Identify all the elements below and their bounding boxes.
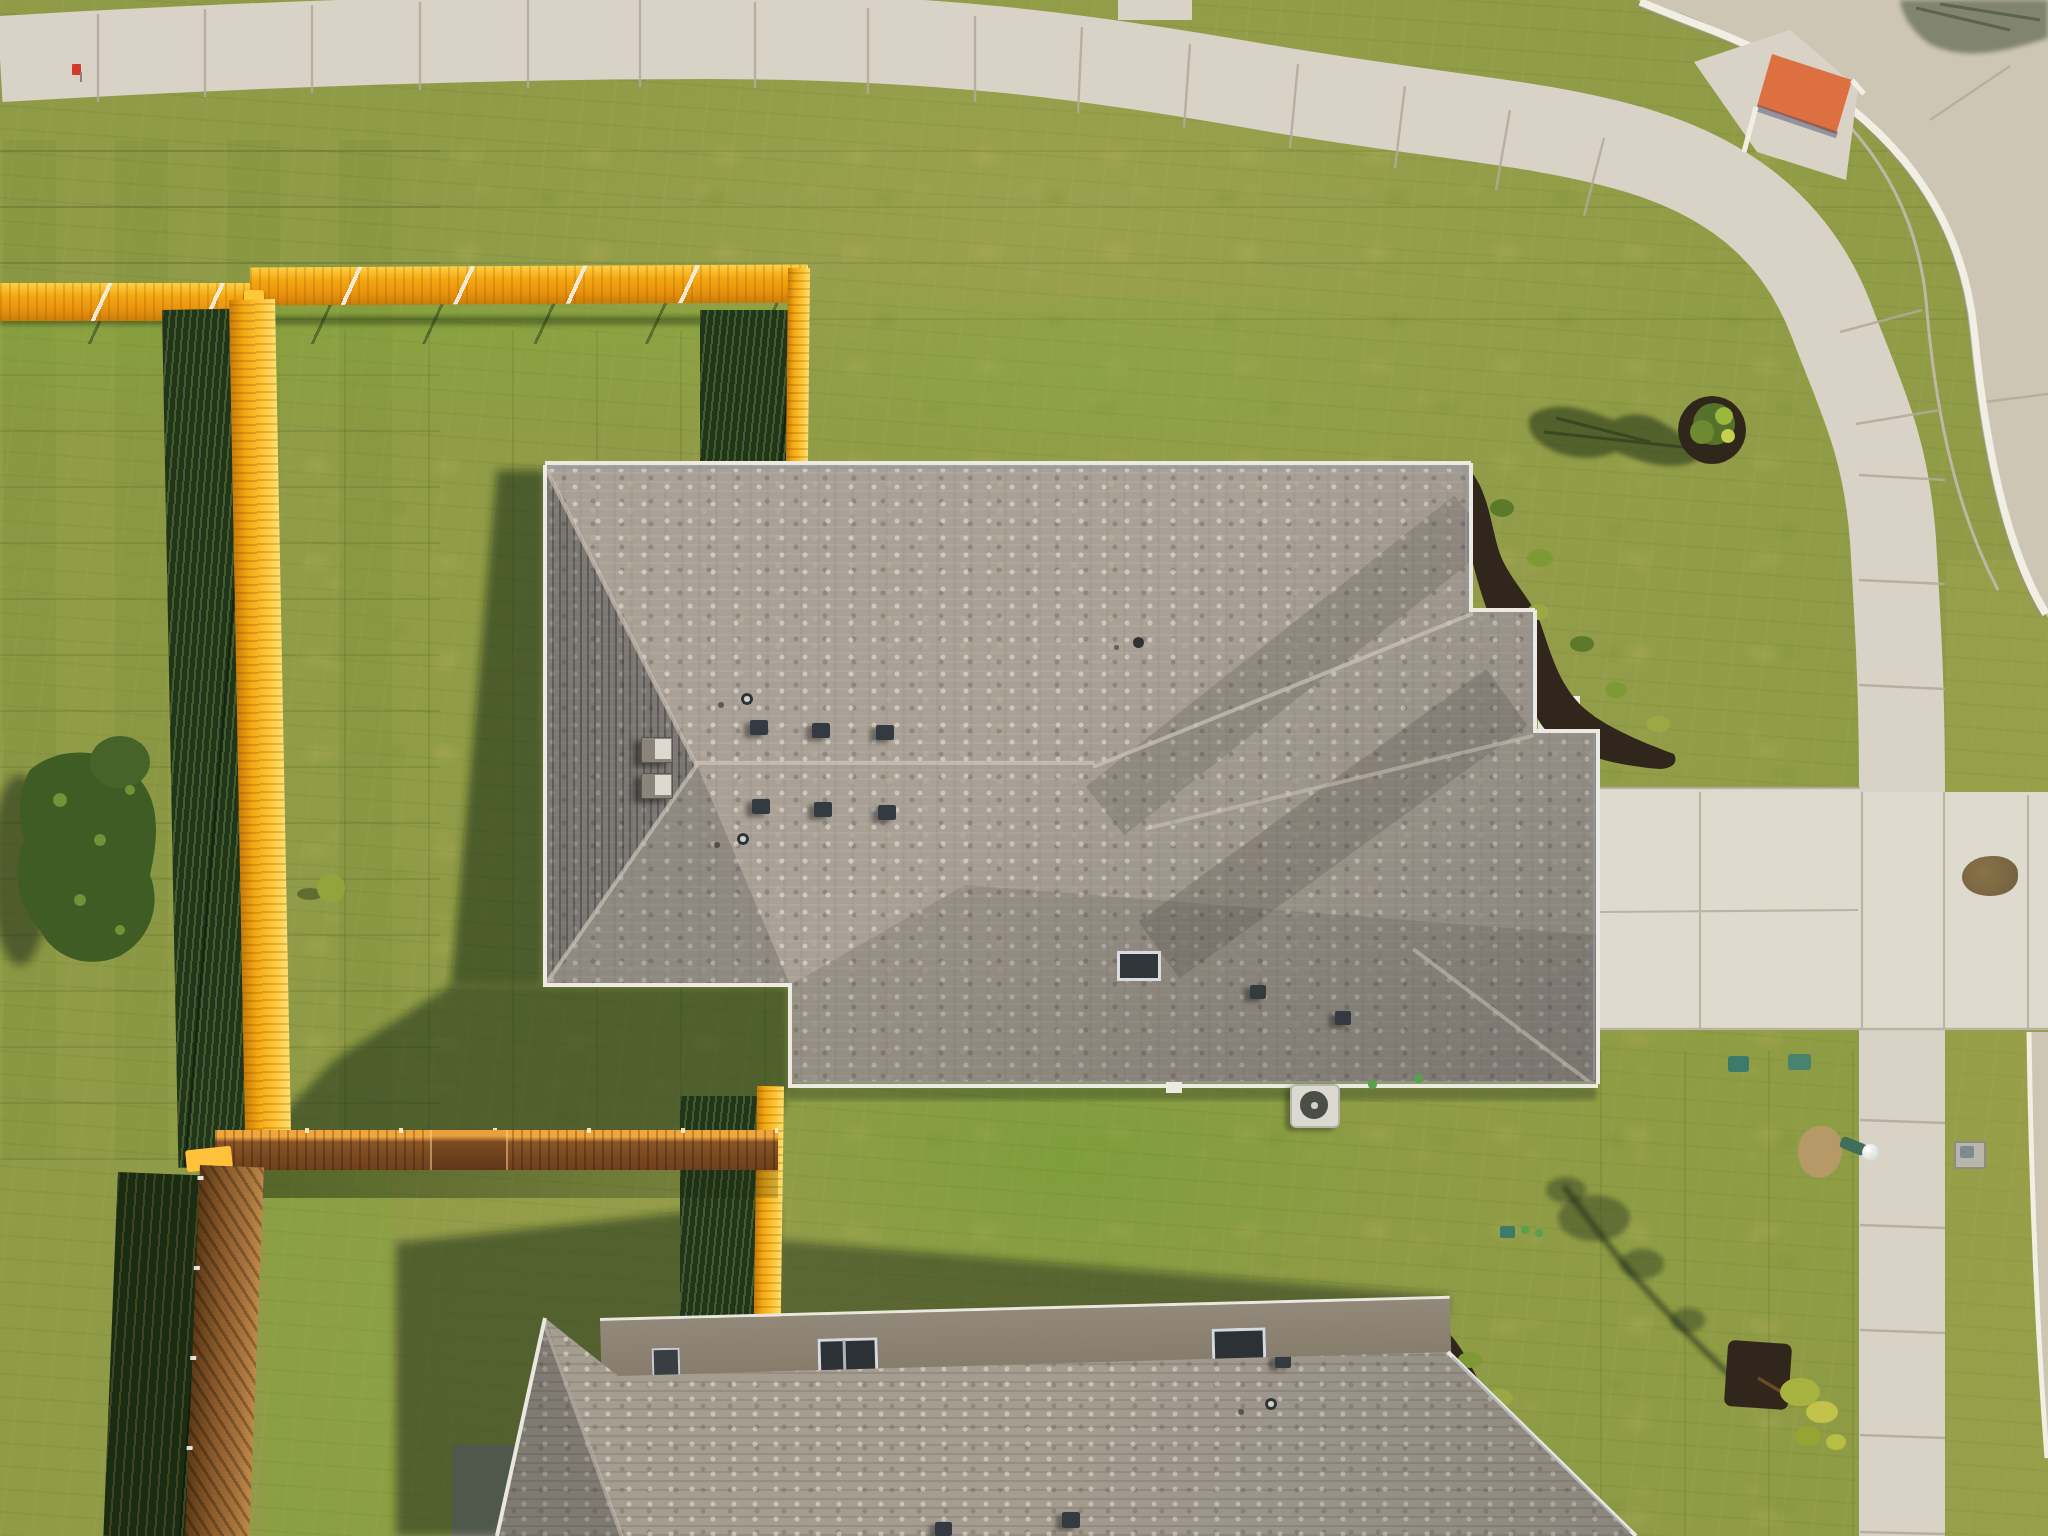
house2-vent-1 bbox=[1062, 1512, 1080, 1528]
roof-vent-a1 bbox=[750, 720, 768, 735]
roof-vent-e2 bbox=[1335, 1011, 1351, 1025]
street-corner-tree-branches bbox=[1916, 4, 2040, 30]
house1-south-slope bbox=[545, 465, 1596, 1086]
small-bush bbox=[317, 874, 345, 902]
roof-vent-a3 bbox=[876, 725, 894, 740]
utility-box-1 bbox=[1728, 1056, 1749, 1072]
lawn-sod-seams-front bbox=[1600, 1050, 1860, 1536]
box-vent-1-lid bbox=[655, 739, 671, 759]
east-fence-lower bbox=[754, 1086, 784, 1324]
box-vent-2-lid bbox=[655, 775, 671, 795]
utility-box-2 bbox=[1788, 1054, 1811, 1070]
tactile-pad bbox=[1757, 54, 1852, 134]
house1-east-hip-cap1 bbox=[1092, 612, 1474, 769]
pipe-vent-1-cap bbox=[744, 696, 750, 702]
driveway-joints bbox=[1590, 788, 2048, 1030]
street-sliver-right bbox=[2028, 1032, 2048, 1462]
roof-vent-e1 bbox=[1250, 985, 1266, 999]
skylight-vent bbox=[1117, 951, 1161, 981]
big-tree-highlights bbox=[53, 785, 135, 935]
corner-tree-shadow bbox=[1529, 407, 1698, 466]
front-tree-shadow-trunk bbox=[1564, 1186, 1742, 1386]
house1-roof bbox=[545, 465, 1596, 1086]
house1-south-contact-shadow bbox=[790, 1086, 1596, 1100]
northeast-fence-shadow bbox=[700, 310, 790, 466]
house2-window-0 bbox=[652, 1348, 681, 1379]
lawn-verge-tint bbox=[1946, 560, 2048, 1536]
big-tree-canopy bbox=[17, 753, 156, 962]
front-tree-shadow-canopy bbox=[1546, 1177, 1705, 1332]
front-tree-foliage bbox=[1780, 1378, 1846, 1450]
house1-hip-band-dark1 bbox=[1086, 495, 1493, 835]
curb-ramp bbox=[1694, 30, 1858, 180]
sprinkler-head-1 bbox=[1521, 1226, 1529, 1234]
lamp-dirt-patch bbox=[1798, 1126, 1842, 1178]
verge-dirt-patch bbox=[1962, 856, 2018, 896]
tactile-pad-shade bbox=[1757, 108, 1837, 135]
street-surface bbox=[1638, 0, 2048, 618]
sprinkler-head-3 bbox=[1368, 1080, 1377, 1089]
sidewalk-tab-top bbox=[1118, 0, 1192, 20]
sprinkler-head-4 bbox=[1414, 1074, 1423, 1083]
street-joint bbox=[1930, 66, 2048, 402]
house1-east-hip-cap2 bbox=[1145, 734, 1535, 831]
roof-vent-b1 bbox=[752, 799, 770, 814]
house1-southeast-hip-cap bbox=[1412, 947, 1596, 1087]
roof-vent-a2 bbox=[812, 723, 830, 738]
curb-main bbox=[1640, 2, 2046, 614]
street-corner-tree-shadow bbox=[1900, 0, 2048, 53]
lawn-bright-northeast bbox=[820, 300, 1520, 480]
house2-pipe-vent-cap bbox=[1268, 1401, 1274, 1407]
corner-tree-shadow-branches bbox=[1544, 418, 1692, 448]
curb-right-sliver bbox=[2029, 1032, 2047, 1458]
small-bush-shadow bbox=[297, 888, 323, 900]
house1-hip-band-dark2 bbox=[1138, 669, 1527, 978]
downspout bbox=[1166, 1082, 1182, 1093]
roof-vent-b3 bbox=[878, 805, 896, 820]
marker-flag-pole bbox=[80, 72, 82, 82]
mid-fence-gate bbox=[430, 1130, 508, 1170]
roof-vent-b2 bbox=[814, 802, 832, 817]
northeast-fence bbox=[786, 268, 810, 466]
front-tree bbox=[1724, 1340, 1846, 1450]
lamp-globe bbox=[1862, 1144, 1879, 1161]
utility-box-3 bbox=[1500, 1226, 1515, 1238]
water-meter-lid bbox=[1960, 1146, 1974, 1158]
ac-fan-hub bbox=[1311, 1102, 1318, 1109]
lawn-bright-strip-front-fence bbox=[268, 1170, 393, 1536]
pipe-vent-2-cap bbox=[740, 836, 746, 842]
house1-northwest-hip-cap bbox=[543, 466, 699, 768]
lawn-mottle-north bbox=[430, 120, 1880, 340]
sprinkler-head-2 bbox=[1535, 1229, 1543, 1237]
pipe-vent-3 bbox=[1133, 637, 1144, 648]
street-gutter-seam bbox=[1680, 14, 1998, 590]
house1-west-shadow bbox=[451, 470, 545, 985]
ramp-curb-edges bbox=[1744, 80, 1864, 152]
house1-southwest-hip-cap bbox=[543, 764, 698, 986]
house1-ridge-cap bbox=[695, 761, 1095, 765]
front-fence bbox=[185, 1165, 264, 1536]
front-tree-trunk bbox=[1758, 1378, 1792, 1398]
aerial-photo-scene bbox=[0, 0, 2048, 1536]
big-tree-own-shadow bbox=[0, 775, 50, 965]
driveway bbox=[1590, 788, 2048, 1030]
lawn-bright-band-backyard bbox=[0, 306, 800, 436]
house1-shingles bbox=[545, 465, 1596, 1086]
curb-shade bbox=[1638, 6, 2042, 618]
house1-soft-shade bbox=[545, 465, 1596, 1086]
north-fence-right-section bbox=[250, 265, 808, 306]
big-tree-canopy2 bbox=[90, 736, 150, 788]
corner-tree bbox=[1678, 396, 1746, 464]
house2-vent-3 bbox=[935, 1522, 952, 1536]
